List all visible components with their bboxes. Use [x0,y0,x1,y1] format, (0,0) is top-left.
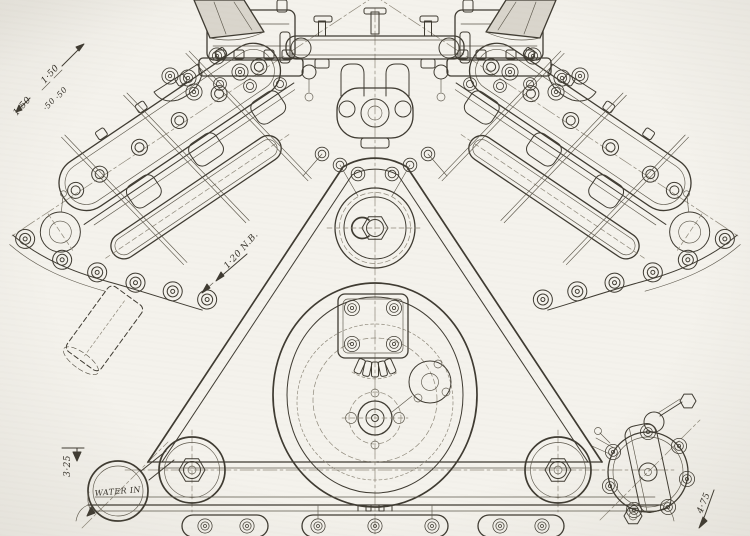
auxiliary-drive-boss [392,360,451,412]
annotations: 1·50 1·50 ·50 ·50 1·20 N.B. 3·25 WATER I… [12,44,714,528]
v-engine-front-elevation-drawing: 1·50 1·50 ·50 ·50 1·20 N.B. 3·25 WATER I… [0,0,750,536]
water-pump [592,394,696,524]
label-pump-dim: 4·75 [695,491,713,516]
label-dim-150-a: 1·50 [40,63,62,86]
right-bank [378,0,750,382]
label-dim-50-b: ·50 [41,96,57,112]
label-dim-150-b: 1·50 [12,95,34,118]
left-bank [0,0,372,382]
inspection-plate [338,294,408,358]
label-water-inlet-dim: 3·25 [63,455,73,477]
label-dim-50-a: ·50 [53,85,69,101]
hidden-pipe-dashed [59,284,145,380]
label-water-in: WATER IN [94,485,141,498]
blueprint-page: 1·50 1·50 ·50 ·50 1·20 N.B. 3·25 WATER I… [0,0,750,536]
label-pipe-bore: 1·20 N.B. [222,230,260,271]
